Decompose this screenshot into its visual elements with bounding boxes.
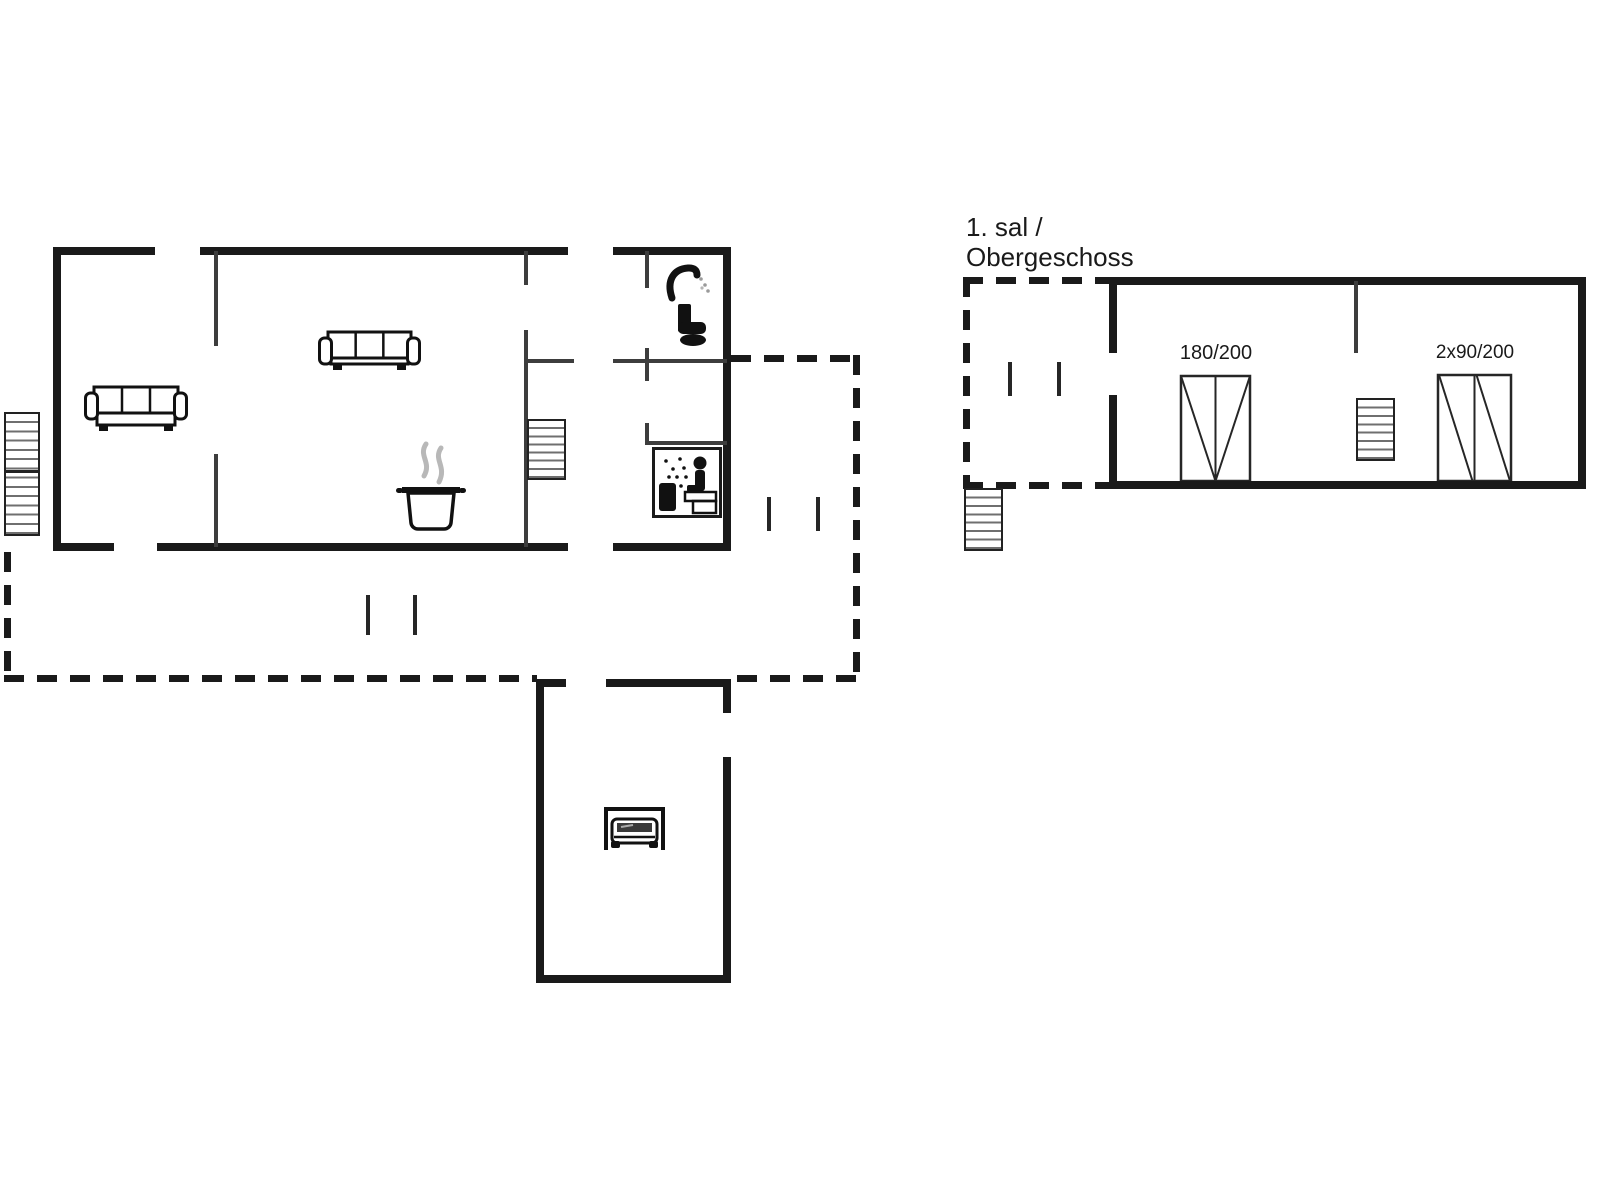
basement-stairs <box>527 419 566 480</box>
cooking-pot-icon <box>396 444 466 529</box>
icons-layer <box>0 0 1600 1200</box>
wall-segment <box>1109 395 1117 489</box>
wall-segment <box>723 247 731 551</box>
terrace-dashed-outline <box>853 355 860 682</box>
interior-wall-segment <box>524 251 528 285</box>
wall-segment <box>536 679 566 687</box>
bed-twin-2x90x200 <box>1438 375 1511 481</box>
wall-segment <box>606 679 731 687</box>
wall-segment <box>53 543 114 551</box>
upper-floor-stairs <box>1356 398 1395 461</box>
interior-wall-segment <box>214 251 218 346</box>
wall-segment <box>1109 277 1586 285</box>
sauna-icon <box>654 449 721 517</box>
stairs-flight-divider <box>4 470 40 473</box>
door-marker <box>1008 362 1012 396</box>
door-marker <box>767 497 771 531</box>
wall-segment <box>200 247 568 255</box>
sofa-icon <box>320 332 420 370</box>
entry-stairs-outside <box>4 412 40 536</box>
upper-floor-entry-stairs <box>964 488 1003 551</box>
interior-wall-segment <box>214 454 218 547</box>
terrace-dashed-outline <box>4 675 537 682</box>
interior-wall-segment <box>645 441 727 445</box>
door-marker <box>413 595 417 635</box>
door-marker <box>1057 362 1061 396</box>
interior-wall-segment <box>613 359 727 363</box>
wall-segment <box>157 543 568 551</box>
wall-segment <box>613 247 731 255</box>
wall-segment <box>723 757 731 983</box>
wall-segment <box>613 543 731 551</box>
interior-wall-segment <box>645 348 649 381</box>
interior-wall-segment <box>645 251 649 288</box>
wall-segment <box>536 679 544 983</box>
wall-segment <box>1109 481 1586 489</box>
terrace-dashed-outline <box>737 675 860 682</box>
floor-title-line2: Obergeschoss <box>966 242 1134 272</box>
floorplan-canvas: 1. sal / Obergeschoss 180/200 2x90/200 <box>0 0 1600 1200</box>
wall-segment <box>1109 277 1117 353</box>
terrace-dashed-outline <box>731 355 860 362</box>
wall-segment <box>536 975 731 983</box>
toilet-icon <box>670 268 710 346</box>
wall-segment <box>1578 277 1586 489</box>
wall-segment <box>723 679 731 713</box>
door-marker <box>816 497 820 531</box>
wall-segment <box>53 247 61 550</box>
bed-double-180x200 <box>1181 376 1250 481</box>
bed-double-size-label: 180/200 <box>1166 342 1266 365</box>
interior-wall-segment <box>524 359 574 363</box>
terrace-dashed-outline <box>963 277 1109 284</box>
sofa-icon <box>86 387 187 431</box>
interior-wall-segment <box>1354 281 1358 353</box>
door-marker <box>366 595 370 635</box>
terrace-dashed-outline <box>963 277 970 489</box>
terrace-dashed-outline <box>4 552 11 682</box>
bed-twin-size-label: 2x90/200 <box>1428 342 1522 364</box>
car-garage-icon <box>606 809 663 850</box>
wall-segment <box>55 247 155 255</box>
floor-title-line1: 1. sal / <box>966 212 1043 242</box>
